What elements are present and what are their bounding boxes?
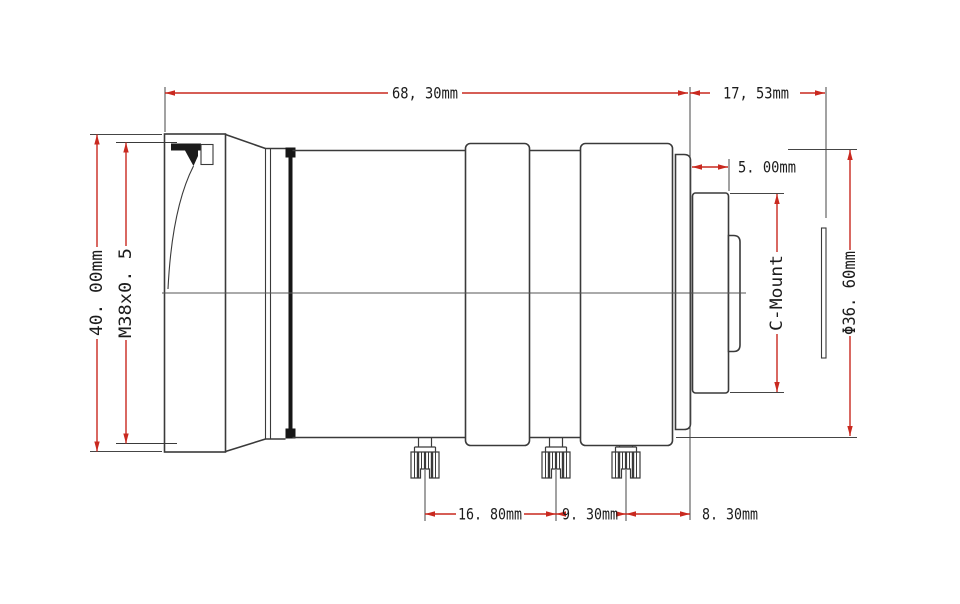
focus-ring	[466, 144, 530, 446]
arrow	[678, 90, 688, 95]
dim-front-diameter-label: 40. 00mm	[87, 250, 107, 336]
technical-drawing-page: 68, 30mm 17, 53mm 5. 00mm 40. 00mm M38x0…	[0, 0, 960, 604]
arrow	[847, 150, 852, 160]
dim-overall-length-label: 68, 30mm	[392, 84, 458, 103]
arrow	[165, 90, 175, 95]
arrow	[123, 434, 128, 444]
arrow	[680, 511, 690, 516]
arrow	[425, 511, 435, 516]
arrow	[692, 164, 702, 169]
arrow	[626, 511, 636, 516]
mount-type-label: C-Mount	[767, 255, 787, 331]
taper-bottom	[226, 439, 266, 452]
dim-mount-length-label: 5. 00mm	[738, 158, 796, 177]
dim-screw-mid-label: 9. 30mm	[562, 505, 618, 524]
arrow	[847, 426, 852, 436]
dim-flange-distance-label: 17, 53mm	[723, 84, 789, 103]
lens-technical-drawing: 68, 30mm 17, 53mm 5. 00mm 40. 00mm M38x0…	[0, 0, 960, 604]
dim-screw-front-label: 16. 80mm	[458, 505, 522, 524]
arrow	[718, 164, 728, 169]
arrow	[123, 143, 128, 153]
arrow	[94, 135, 99, 145]
dim-rear-diameter-label: Φ36. 60mm	[840, 251, 860, 335]
dim-screw-rear-label: 8. 30mm	[702, 505, 758, 524]
arrow	[774, 194, 779, 204]
seal-block-top	[286, 148, 296, 158]
arrow	[94, 442, 99, 452]
arrow	[815, 90, 825, 95]
dim-front-thread-label: M38x0. 5	[116, 248, 136, 338]
sensor-plane-marker	[822, 228, 827, 358]
arrow	[690, 90, 700, 95]
taper-top	[226, 135, 266, 149]
retaining-ring-notch	[201, 145, 213, 165]
rear-cap	[676, 155, 691, 430]
iris-ring	[581, 144, 673, 446]
arrow	[774, 382, 779, 392]
arrow	[546, 511, 556, 516]
